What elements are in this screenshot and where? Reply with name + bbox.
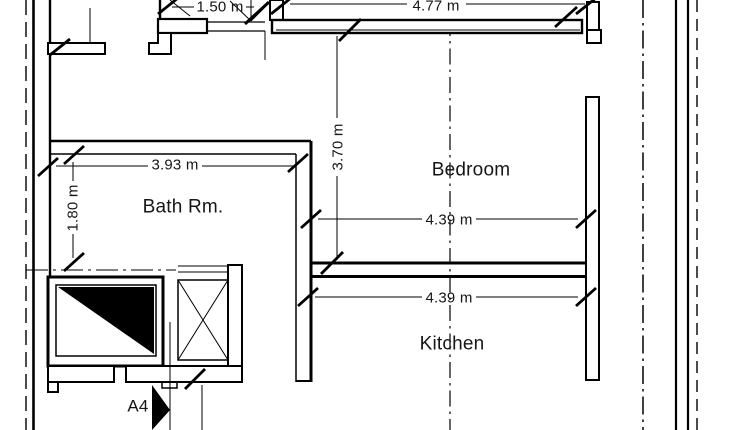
top-wall-band: [272, 20, 582, 33]
floor-plan-linework: [0, 0, 747, 430]
dimension-label-bath-width: 3.93 m: [151, 158, 198, 173]
stair-right-wall: [228, 265, 242, 382]
landing-wall-foot: [149, 33, 171, 54]
section-cut-arrow-icon: [152, 385, 170, 430]
bottom-wall-left: [48, 366, 114, 382]
bottom-wall-right: [126, 366, 242, 382]
top-wall-right-foot: [587, 30, 601, 43]
dim-tick: [38, 158, 58, 176]
left-boundary-lines: [26, 0, 34, 430]
dimension-label-kitchen-width: 4.39 m: [425, 291, 472, 306]
section-marker-label: A4: [127, 398, 148, 415]
dim-tick: [288, 154, 308, 172]
room-label-bedroom: Bedroom: [432, 161, 511, 180]
landing-wall-block: [158, 19, 207, 33]
staircase: [178, 265, 242, 382]
right-boundary-lines: [643, 0, 697, 430]
room-label-bath: Bath Rm.: [143, 198, 224, 217]
corridor-walls: [48, 0, 105, 277]
floor-plan: 1.50 m 4.77 m 3.70 m 3.93 m 1.80 m 4.39 …: [0, 0, 747, 430]
elevator: [48, 277, 163, 366]
dimension-label-top-wall-width: 4.77 m: [412, 0, 459, 14]
dimension-label-bedroom-depth: 3.70 m: [331, 123, 346, 170]
dim-tick: [64, 146, 84, 164]
bedroom-kitchen-right-wall: [586, 97, 599, 380]
dim-tick: [64, 253, 84, 271]
bottom-wall-notch-left: [48, 382, 58, 392]
dimension-label-landing-width: 1.50 m: [196, 0, 243, 15]
dim-tick: [245, 2, 269, 24]
room-label-kitchen: Kitchen: [420, 335, 485, 354]
dimension-label-bedroom-width: 4.39 m: [425, 213, 472, 228]
dimension-label-bath-depth: 1.80 m: [66, 184, 81, 231]
